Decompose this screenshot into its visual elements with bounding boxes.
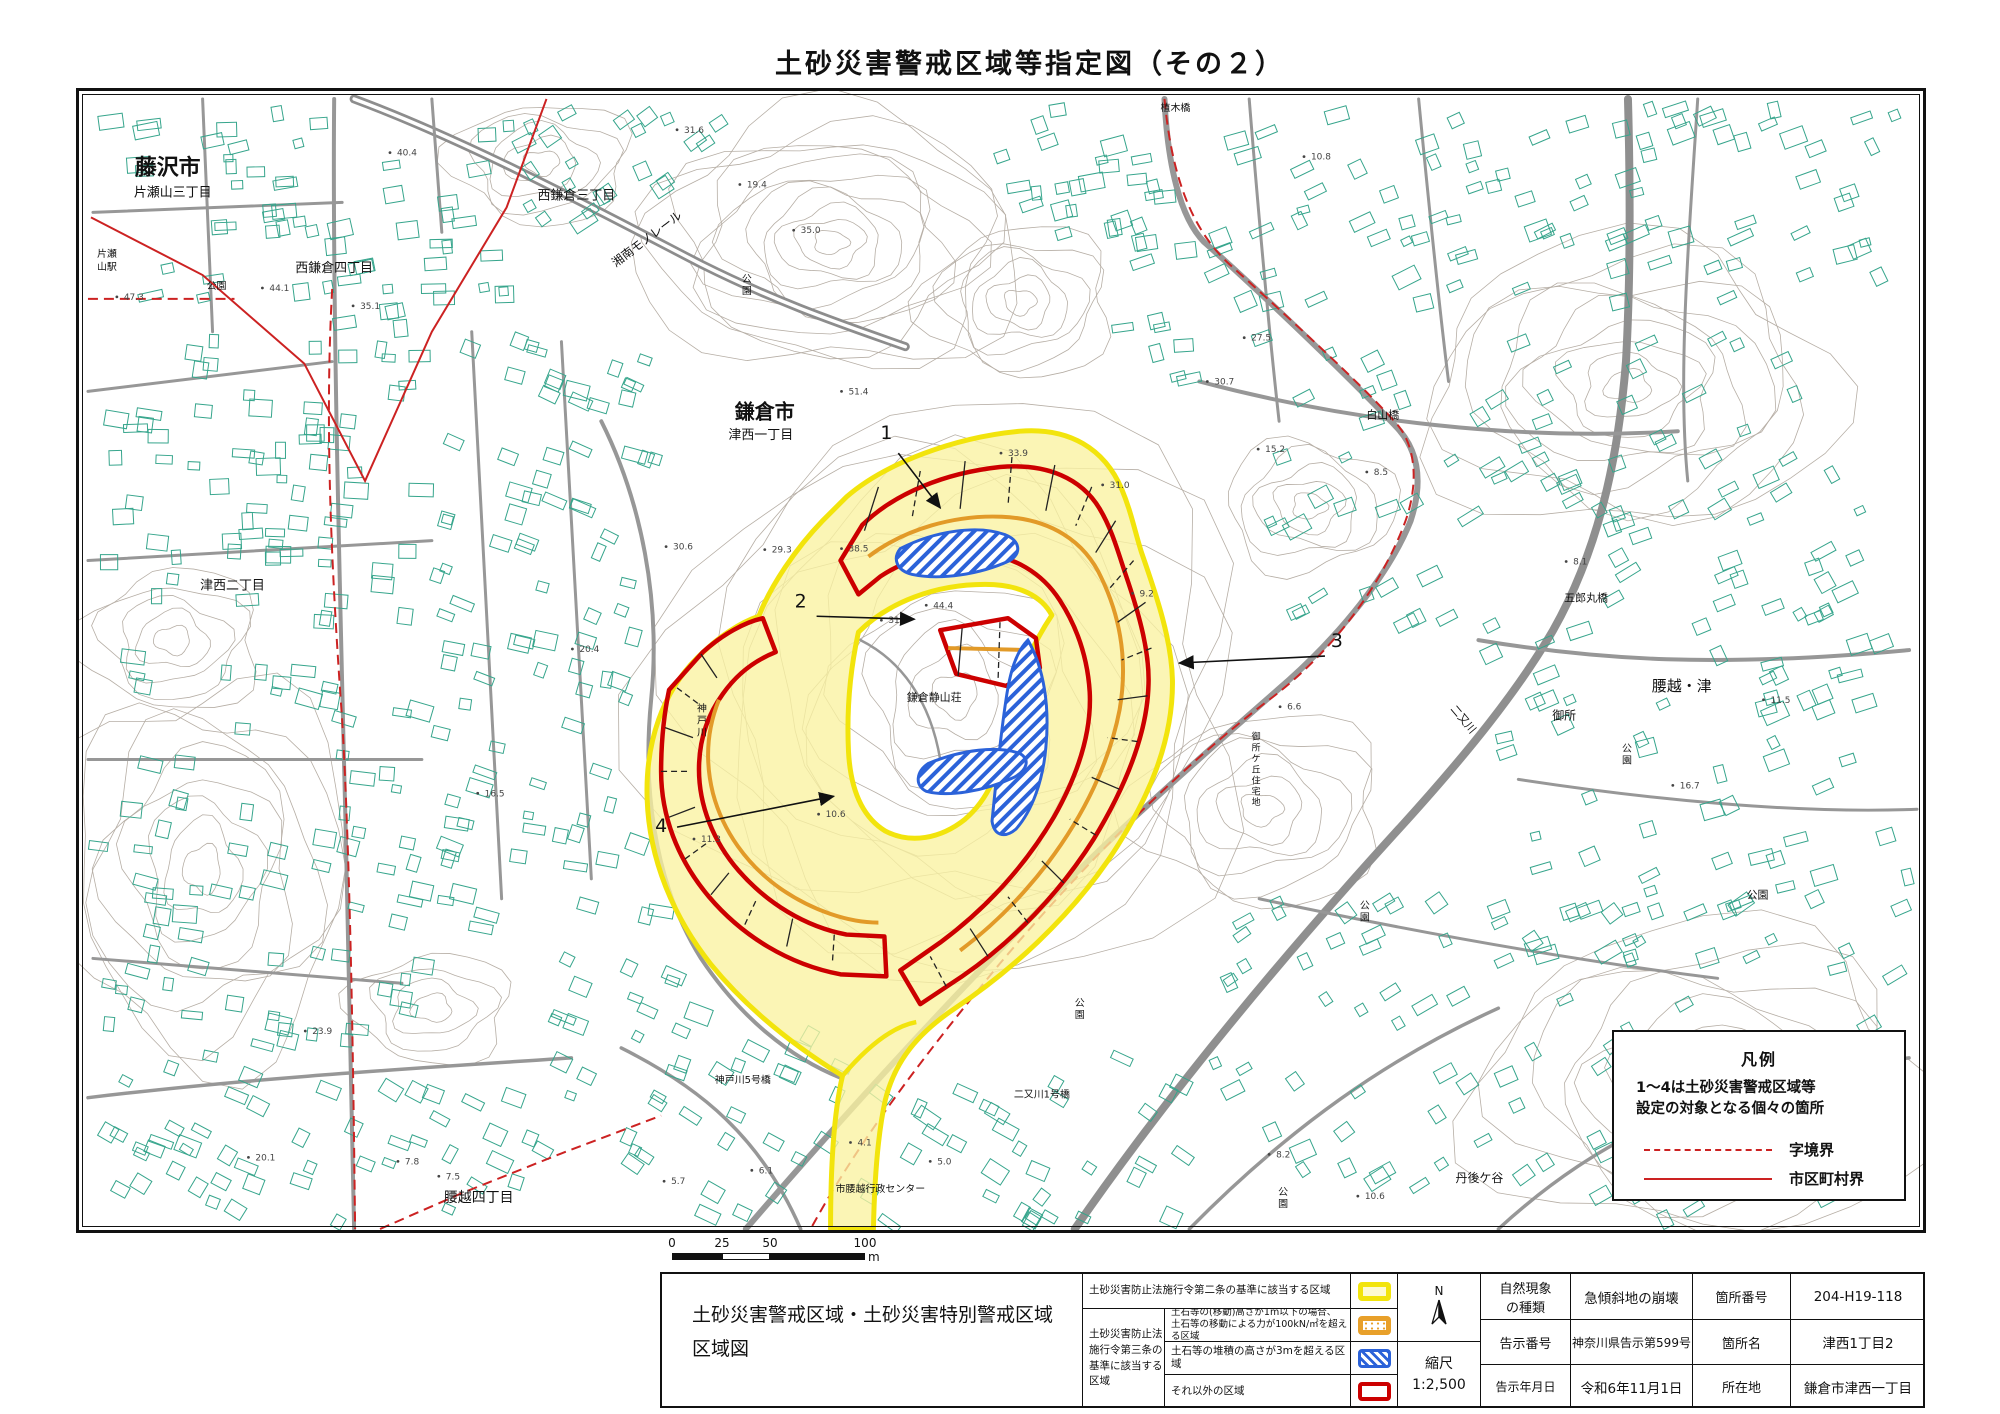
site-number-callout: 3 [1331,630,1343,652]
map-label: 片瀬 [97,247,117,260]
map-label: 白山橋 [1366,407,1399,421]
scale-cell: 縮尺 1:2,500 [1397,1341,1480,1408]
field-label-site-number: 箇所番号 [1692,1274,1790,1319]
legend-row3-label: 土石等の堆積の高さが3mを超える区域 [1164,1341,1350,1374]
field-value-phenomenon: 急傾斜地の崩壊 [1570,1274,1692,1319]
hazard-map-sheet: 土砂災害警戒区域等指定図（その２） [0,0,2000,1414]
map-label: 公園 [1622,744,1632,767]
scale-tick-0: 0 [668,1236,676,1250]
legend-group-label: 土砂災害防止法 施行令第三条の 基準に該当する 区域 [1082,1308,1164,1408]
map-label: 公園 [1747,889,1769,902]
map-label: 山駅 [97,261,117,273]
map-label: 御所 [1552,708,1576,723]
map-label: 公園 [1278,1187,1288,1210]
municipal-boundary-sample-line [1644,1178,1772,1180]
legend-row2-swatch-cell [1350,1308,1397,1341]
site-number-callout: 2 [795,590,807,612]
scale-unit: m [868,1250,880,1264]
map-label: 神戸川 [697,702,707,739]
spot-elevation: 35.1 [360,302,380,312]
spot-elevation: 19.4 [747,180,767,190]
scale-segment-3 [770,1253,865,1260]
red-zone-swatch [1358,1382,1391,1401]
spot-elevation: 8.2 [1276,1150,1290,1160]
page-title: 土砂災害警戒区域等指定図（その２） [560,42,1500,82]
spot-elevation: 16.5 [485,789,505,799]
map-label: 市腰越行政センター [836,1182,926,1195]
spot-elevation: 8.5 [1374,468,1388,478]
spot-elevation: 44.4 [933,601,953,611]
spot-elevation: 30.6 [673,543,693,553]
title-block-table: 土砂災害警戒区域・土砂災害特別警戒区域 区域図 土砂災害防止法施行令第二条の基準… [660,1272,1925,1408]
spot-elevation: 31.6 [684,126,704,136]
scale-label: 縮尺 [1425,1354,1453,1375]
spot-elevation: 33.9 [1008,449,1028,459]
map-label: 藤沢市 [135,155,201,181]
field-label-notice-date: 告示年月日 [1480,1364,1570,1408]
field-value-notice-date: 令和6年11月1日 [1570,1364,1692,1408]
map-label: 丹後ケ谷 [1456,1171,1504,1185]
field-value-site-name: 津西1丁目2 [1790,1319,1925,1364]
yellow-zone-swatch [1358,1282,1391,1301]
spot-elevation: 9.2 [1140,589,1154,599]
spot-elevation: 44.1 [269,284,289,294]
map-label: 鎌倉市 [734,399,795,423]
scale-tick-25: 25 [714,1236,729,1250]
map-label: 西鎌倉三丁目 [538,188,616,203]
map-label: 公園 [742,274,752,297]
spot-elevation: 16.7 [1680,781,1700,791]
spot-elevation: 4.1 [857,1138,871,1148]
spot-elevation: 10.6 [826,810,846,820]
legend-row4-label: それ以外の区域 [1164,1374,1350,1408]
field-value-location: 鎌倉市津西一丁目 [1790,1364,1925,1408]
scale-segment-1 [672,1253,722,1260]
spot-elevation: 20.1 [255,1153,275,1163]
map-label: 津西一丁目 [728,428,793,443]
compass-n-label: N [1435,1284,1444,1298]
legend-row1-label: 土砂災害防止法施行令第二条の基準に該当する区域 [1082,1274,1350,1308]
legend-row1-swatch-cell [1350,1274,1397,1308]
site-number-callout: 1 [880,422,892,444]
map-label: 腰越・津 [1652,677,1712,695]
spot-elevation: 47.3 [124,293,144,303]
spot-elevation: 38.5 [848,545,868,555]
scale-tick-50: 50 [762,1236,777,1250]
spot-elevation: 5.0 [937,1157,952,1167]
spot-elevation: 15.2 [1265,445,1285,455]
map-label: 御所ケ丘住宅地 [1252,731,1261,809]
spot-elevation: 30.7 [1214,377,1234,387]
spot-elevation: 8.1 [1573,558,1587,568]
map-label: 植木橋 [1161,101,1191,114]
compass-cell: N [1397,1274,1480,1341]
field-label-notice-number: 告示番号 [1480,1319,1570,1364]
legend-note: 1～4は土砂災害警戒区域等 設定の対象となる個々の箇所 [1636,1078,1896,1120]
spot-elevation: 51.4 [848,387,868,397]
field-label-location: 所在地 [1692,1364,1790,1408]
map-label: 津西二丁目 [200,578,265,593]
field-value-site-number: 204-H19-118 [1790,1274,1925,1319]
spot-elevation: 31.0 [1110,481,1130,491]
spot-elevation: 11.3 [701,835,721,845]
map-label: 西鎌倉四丁目 [295,261,373,276]
spot-elevation: 7.8 [405,1157,420,1167]
spot-elevation: 10.6 [1365,1192,1385,1202]
field-value-notice-number: 神奈川県告示第599号 [1570,1319,1692,1364]
field-label-site-name: 箇所名 [1692,1319,1790,1364]
map-label: 二又川1号橋 [1014,1088,1070,1101]
field-label-phenomenon: 自然現象 の種類 [1480,1274,1570,1319]
spot-elevation: 27.5 [1251,334,1271,344]
spot-elevation: 10.8 [1311,153,1331,163]
spot-elevation: 5.7 [671,1177,685,1187]
legend-row3-swatch-cell [1350,1341,1397,1374]
spot-elevation: 6.1 [759,1166,773,1176]
map-label: 五郎丸橋 [1564,590,1608,604]
map-label: 片瀬山三丁目 [134,185,212,200]
spot-elevation: 23.9 [312,1027,332,1037]
spot-elevation: 11.5 [1770,696,1790,706]
legend-title: 凡例 [1614,1046,1904,1070]
municipal-boundary-label: 市区町村界 [1789,1168,1864,1189]
map-label: 公園 [1360,901,1370,924]
map-label: 公園 [1075,998,1085,1021]
site-number-callout: 4 [655,815,667,837]
scale-value: 1:2,500 [1412,1375,1466,1396]
map-label: 公園 [207,280,227,292]
spot-elevation: 35.0 [801,226,821,236]
scale-tick-100: 100 [854,1236,877,1250]
scale-segment-2 [722,1253,770,1260]
orange-zone-swatch [1358,1316,1391,1335]
spot-elevation: 40.4 [397,149,417,159]
map-label: 腰越四丁目 [444,1190,514,1206]
spot-elevation: 29.3 [772,546,792,556]
map-document-title: 土砂災害警戒区域・土砂災害特別警戒区域 区域図 [662,1274,1082,1408]
north-arrow-icon [1426,1298,1452,1332]
spot-elevation: 7.5 [446,1172,460,1182]
legend-box: 凡例 1～4は土砂災害警戒区域等 設定の対象となる個々の箇所 字境界 市区町村界 [1612,1030,1906,1201]
blue-zone-swatch [1358,1349,1391,1368]
spot-elevation: 6.6 [1287,703,1302,713]
spot-elevation: 20.4 [579,645,599,655]
aza-boundary-label: 字境界 [1789,1139,1834,1160]
map-label: 神戸川5号橋 [715,1073,771,1086]
aza-boundary-sample-line [1644,1149,1772,1151]
spot-elevation: 31.3 [888,616,908,626]
map-label: 鎌倉静山荘 [907,690,962,704]
legend-row4-swatch-cell [1350,1374,1397,1408]
legend-row2-label: 土石等の(移動)高さが1m以下の場合、 土石等の移動による力が100kN/㎡を超… [1164,1308,1350,1341]
scale-bar: 0 25 50 100 m [660,1236,900,1266]
